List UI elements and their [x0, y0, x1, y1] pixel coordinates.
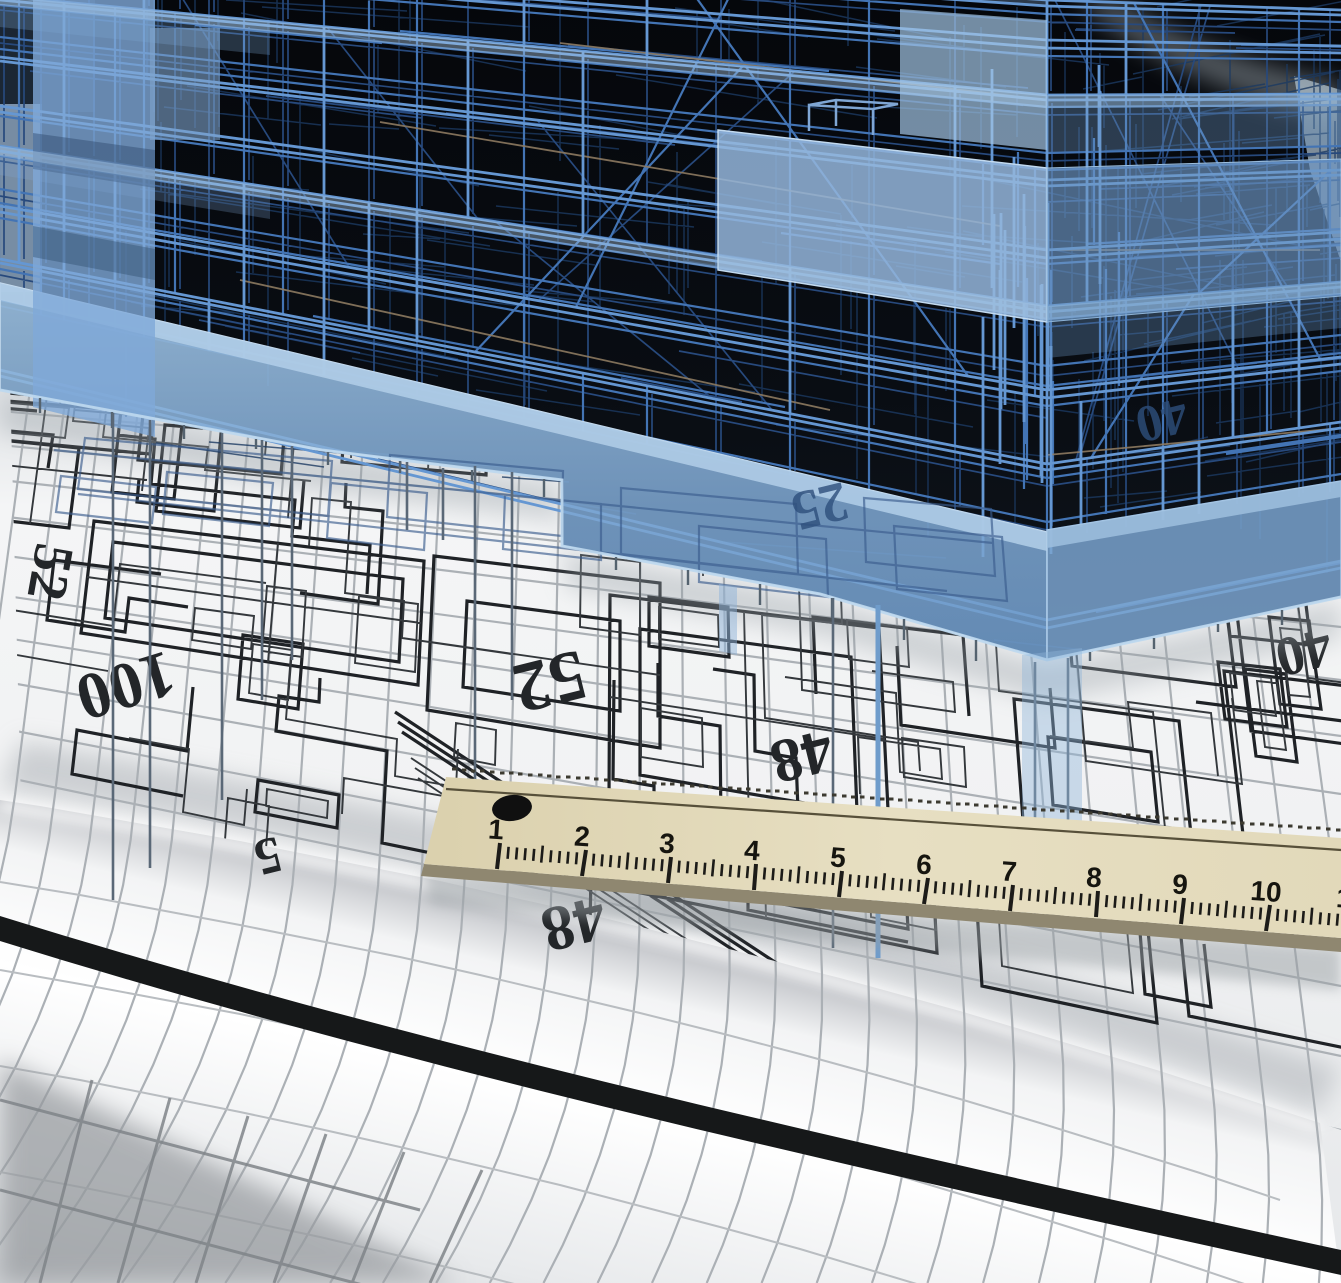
svg-text:3: 3	[658, 827, 676, 859]
svg-text:7: 7	[1000, 855, 1018, 887]
svg-text:8: 8	[1085, 861, 1103, 893]
svg-text:10: 10	[1249, 875, 1282, 908]
svg-text:6: 6	[915, 848, 933, 880]
svg-text:11: 11	[1335, 882, 1341, 915]
svg-text:52: 52	[15, 539, 86, 605]
svg-text:1: 1	[487, 813, 505, 845]
svg-text:4: 4	[743, 834, 761, 866]
svg-text:2: 2	[573, 820, 591, 852]
svg-text:9: 9	[1171, 868, 1189, 900]
svg-text:5: 5	[829, 841, 847, 873]
